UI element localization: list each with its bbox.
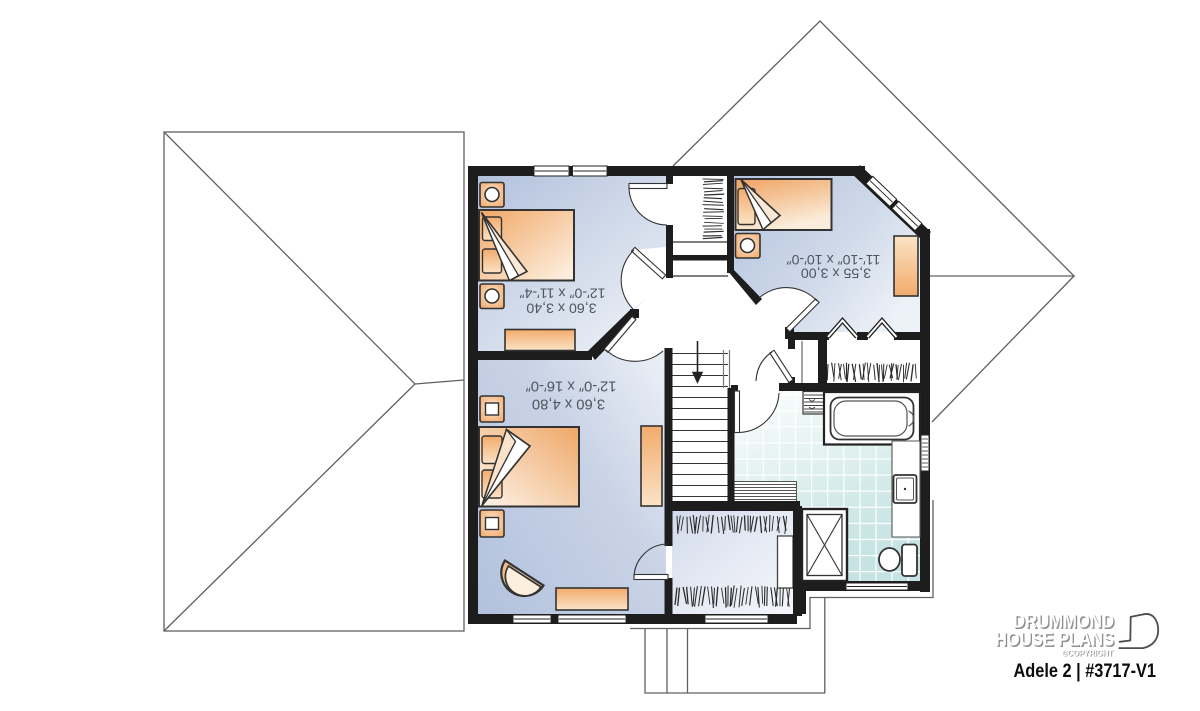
svg-text:HOUSE PLANS: HOUSE PLANS xyxy=(995,630,1114,651)
svg-text:Adele 2 | #3717-V1: Adele 2 | #3717-V1 xyxy=(1014,661,1157,682)
svg-text:12′-0″ x 16′-0″: 12′-0″ x 16′-0″ xyxy=(526,377,617,393)
svg-text:12′-0″ x 11′-4″: 12′-0″ x 11′-4″ xyxy=(519,285,605,301)
svg-text:3,60 x 3,40: 3,60 x 3,40 xyxy=(526,300,596,316)
svg-text:3,55 x 3,00: 3,55 x 3,00 xyxy=(801,265,871,281)
svg-text:3,60 x 4,80: 3,60 x 4,80 xyxy=(532,395,605,411)
svg-text:©COPYRIGHT: ©COPYRIGHT xyxy=(1062,649,1113,658)
